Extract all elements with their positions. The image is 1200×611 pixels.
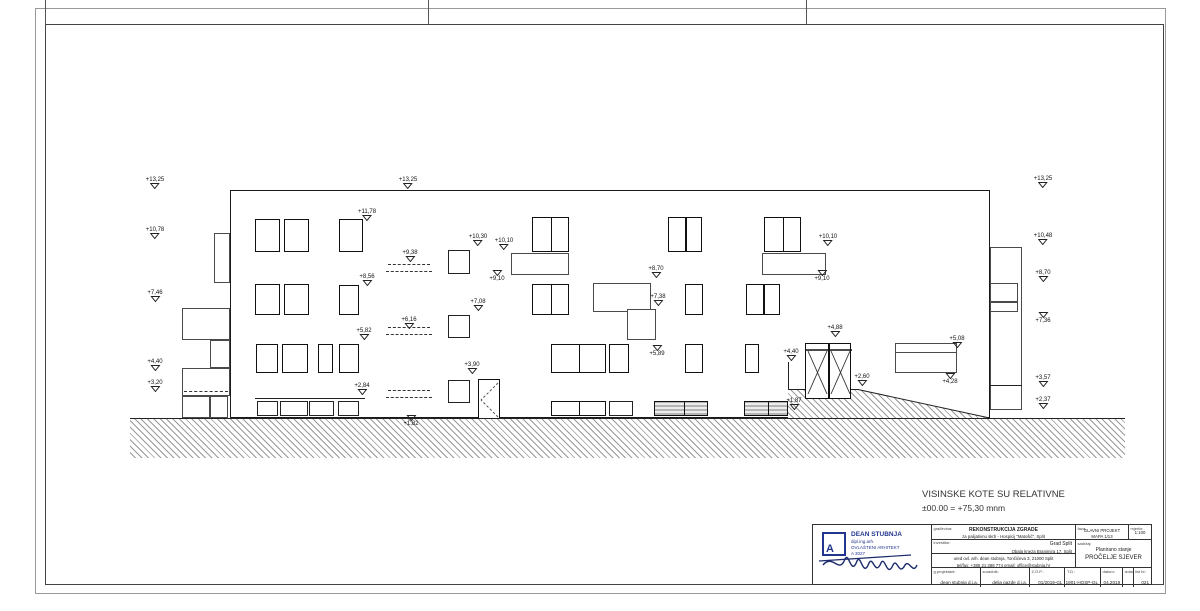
elevation-marker: +13,25 (399, 177, 418, 189)
elevation-marker: +7,36 (1035, 312, 1050, 324)
stair-dashed-line (386, 271, 432, 272)
investor-name: Grad Split (932, 540, 1075, 548)
elevation-marker: +7,46 (147, 290, 162, 302)
sheet-title: PROČELJE SJEVER (1076, 553, 1151, 562)
project-subtitle: za palijativnu skrb - Hospicij "Matošić"… (932, 533, 1075, 540)
elevation-marker: +7,38 (650, 294, 665, 306)
canopy-slab (511, 253, 569, 275)
elevation-marker: +5,08 (949, 336, 964, 348)
window (609, 401, 633, 416)
notes: VISINSKE KOTE SU RELATIVNE ±00.00 = +75,… (922, 488, 1065, 514)
window (284, 284, 309, 315)
titleblock-cell-gprojektant: g.projektant:dean stubnja d.i.a. (932, 568, 981, 587)
window (668, 217, 702, 252)
elevation-marker: +8,70 (1035, 270, 1050, 282)
elevation-marker: +11,78 (358, 209, 376, 221)
window (532, 217, 569, 252)
elevation-marker: +10,10 (819, 234, 838, 246)
side-volume (210, 396, 228, 418)
stair-dashed-line (386, 334, 432, 335)
field-office: ured ovl. arh. dean stubnja, Tončićeva 3… (932, 554, 1075, 567)
titleblock-cell-datum: datum:04.2019 (1101, 568, 1123, 587)
window (255, 219, 280, 252)
window (256, 344, 278, 373)
entrance-door (478, 379, 500, 419)
elevation-marker: +8,56 (359, 274, 374, 286)
elevation-marker: +4,28 (942, 373, 957, 385)
window (448, 380, 470, 403)
window (255, 284, 280, 315)
office-contact: tel/fax: +385 21 388 774 email: office@s… (932, 561, 1075, 567)
elevation-marker: +5,89 (649, 345, 664, 357)
stair-dashed-line (184, 391, 228, 392)
side-volume (182, 308, 230, 340)
titleblock-cell-td: T.D.:1901-HOSP-GL (1065, 568, 1101, 587)
titleblock-cell-listbr: list br:021 (1134, 568, 1151, 587)
elevation-marker: +4,88 (827, 325, 842, 337)
side-volume (990, 283, 1018, 302)
title-block-bottom-row: g.projektant:dean stubnja d.i.a.suradnik… (932, 567, 1151, 587)
drawing-sheet: +13,25+10,78+7,46+4,40+3,20+13,25+11,78+… (0, 0, 1200, 611)
line (990, 385, 1022, 386)
project-name: REKONSTRUKCIJA ZGRADE (932, 525, 1075, 533)
window (280, 401, 308, 416)
window (744, 401, 788, 416)
window (654, 401, 708, 416)
elevation-marker: +3,90 (464, 362, 479, 374)
window (448, 315, 470, 338)
field-label: faza: (1078, 526, 1087, 531)
side-volume (182, 396, 210, 418)
window (257, 401, 278, 416)
elevation-marker: +7,08 (470, 299, 485, 311)
recess-panel (627, 309, 656, 340)
titleblock-cell-zop: Z.O.P.:01/2019-GL (1030, 568, 1066, 587)
window (551, 344, 606, 373)
stair-dashed-line (388, 390, 430, 391)
line (255, 398, 365, 399)
side-volume (214, 233, 230, 283)
map-value: MAPA 1/13 (1076, 533, 1128, 540)
elevation-marker: +10,10 (495, 238, 514, 250)
window (282, 344, 308, 373)
recess-panel (593, 283, 651, 312)
investor-address: Obala kneza Branimira 17, Split (932, 547, 1075, 554)
elevation-marker: +2,84 (354, 383, 369, 395)
elevation-marker: +1,82 (403, 415, 418, 427)
double-entrance-door (805, 343, 851, 399)
elevation-marker: +2,60 (854, 374, 869, 386)
elevation-drawing: +13,25+10,78+7,46+4,40+3,20+13,25+11,78+… (0, 0, 1200, 611)
elevation-marker: +10,48 (1034, 233, 1053, 245)
window (685, 284, 703, 315)
field-label: investitor: (934, 540, 951, 545)
elevation-marker: +10,30 (469, 234, 488, 246)
elevation-marker: +5,82 (356, 328, 371, 340)
field-project: građevina: REKONSTRUKCIJA ZGRADE za pali… (932, 525, 1075, 540)
note-title: VISINSKE KOTE SU RELATIVNE (922, 488, 1065, 502)
ground-hatch (130, 418, 1125, 458)
window (318, 344, 333, 373)
elevation-marker: +2,37 (1035, 397, 1050, 409)
field-label: sadržaj: (1078, 541, 1092, 546)
parapet-wall (895, 343, 957, 373)
elevation-marker: +13,25 (1034, 176, 1053, 188)
signature (813, 525, 931, 586)
window (284, 219, 309, 252)
elevation-marker: +1,87 (786, 398, 801, 410)
stair-dashed-line (386, 397, 432, 398)
window (764, 217, 801, 252)
door-leaf-lines (806, 344, 852, 400)
window (339, 344, 359, 373)
scale-cell: mjerilo: 1:100 (1129, 525, 1151, 539)
field-investor: investitor: Grad Split Obala kneza Brani… (932, 540, 1075, 555)
window (551, 401, 606, 416)
window (339, 285, 359, 315)
titleblock-cell-izdao: izdao: (1123, 568, 1134, 587)
window (309, 401, 334, 416)
note-datum: ±00.00 = +75,30 mnm (922, 502, 1065, 514)
elevation-marker: +6,16 (401, 317, 416, 329)
elevation-marker: +10,78 (146, 227, 165, 239)
elevation-marker: +9,10 (814, 270, 829, 282)
window (609, 344, 629, 373)
window (746, 284, 780, 315)
elevation-marker: +3,57 (1035, 375, 1050, 387)
field-phase: faza: GLAVNI PROJEKT MAPA 1/13 mjerilo: … (1076, 525, 1151, 540)
window (448, 250, 470, 274)
titleblock-cell-suradnik: suradnik:delia gazde d.i.a. (981, 568, 1030, 587)
elevation-marker: +13,25 (146, 177, 165, 189)
window (745, 344, 759, 373)
stair-dashed-line (388, 264, 430, 265)
field-label: mjerilo: (1131, 526, 1144, 531)
phase-cell: faza: GLAVNI PROJEKT MAPA 1/13 (1076, 525, 1129, 539)
window (532, 284, 569, 315)
elevation-marker: +8,70 (648, 266, 663, 278)
elevation-marker: +4,40 (147, 359, 162, 371)
window (339, 219, 363, 252)
office-address: ured ovl. arh. dean stubnja, Tončićeva 3… (932, 554, 1075, 561)
field-content: sadržaj: Planirano stanje PROČELJE SJEVE… (1076, 540, 1151, 567)
window (685, 344, 703, 373)
window (338, 401, 359, 416)
side-volume (210, 340, 230, 368)
door-swing-lines (479, 380, 501, 420)
elevation-marker: +9,10 (489, 270, 504, 282)
elevation-marker: +9,38 (402, 250, 417, 262)
title-block: A DEAN STUBNJA dipl.ing.arh. OVLAŠTENI A… (812, 524, 1152, 585)
side-volume (990, 302, 1018, 312)
elevation-marker: +4,40 (783, 349, 798, 361)
architect-logo: A DEAN STUBNJA dipl.ing.arh. OVLAŠTENI A… (813, 525, 932, 584)
field-label: građevina: (934, 526, 953, 531)
elevation-marker: +3,20 (147, 380, 162, 392)
